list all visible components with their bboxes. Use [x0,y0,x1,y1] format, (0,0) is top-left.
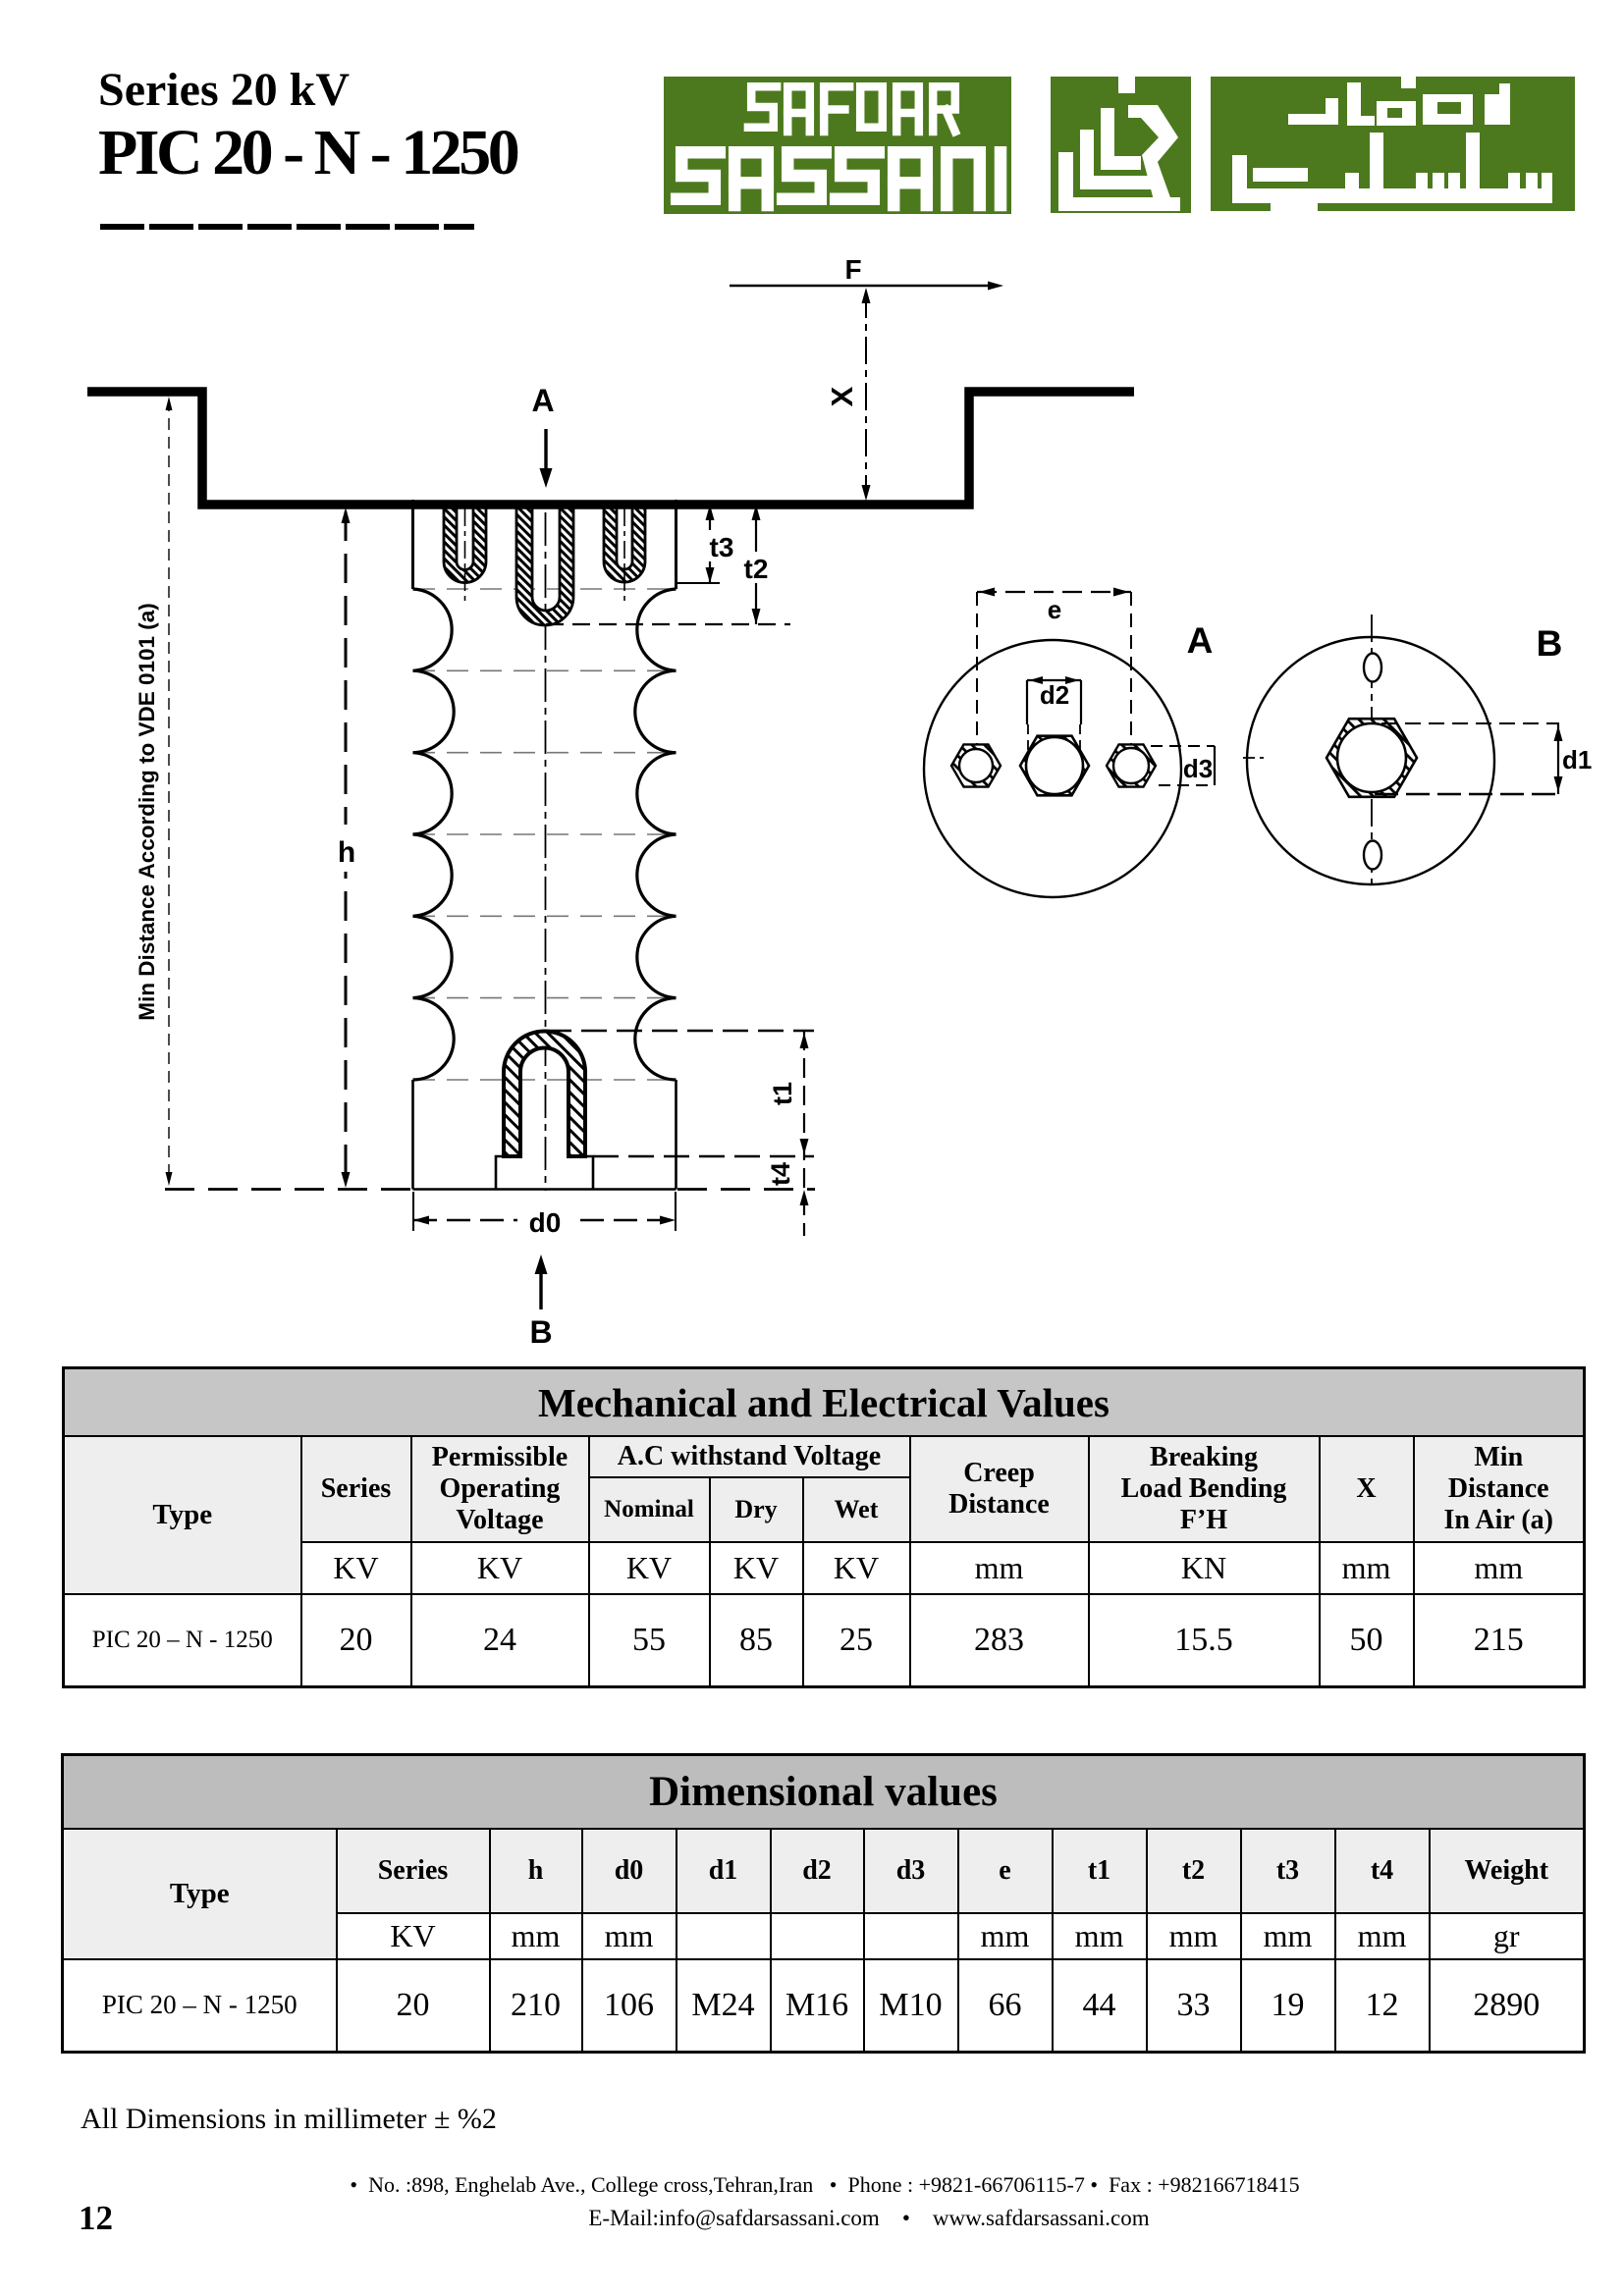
svg-text:t3: t3 [710,532,734,562]
svg-text:e: e [1048,595,1061,624]
svg-text:h: h [338,836,355,869]
svg-text:d3: d3 [1183,754,1213,783]
svg-text:d2: d2 [1040,680,1069,710]
svg-text:Min Distance According to VDE: Min Distance According to VDE 0101 (a) [135,603,159,1021]
svg-text:t4: t4 [766,1162,795,1186]
svg-text:B: B [1537,623,1563,664]
svg-text:d1: d1 [1562,745,1592,774]
svg-text:A: A [1187,620,1214,661]
svg-text:d0: d0 [529,1207,562,1238]
svg-text:F: F [844,254,861,285]
svg-text:A: A [531,383,554,418]
svg-text:t1: t1 [768,1082,797,1105]
svg-text:X: X [825,386,859,406]
svg-text:t2: t2 [744,554,769,584]
svg-text:B: B [529,1314,552,1350]
